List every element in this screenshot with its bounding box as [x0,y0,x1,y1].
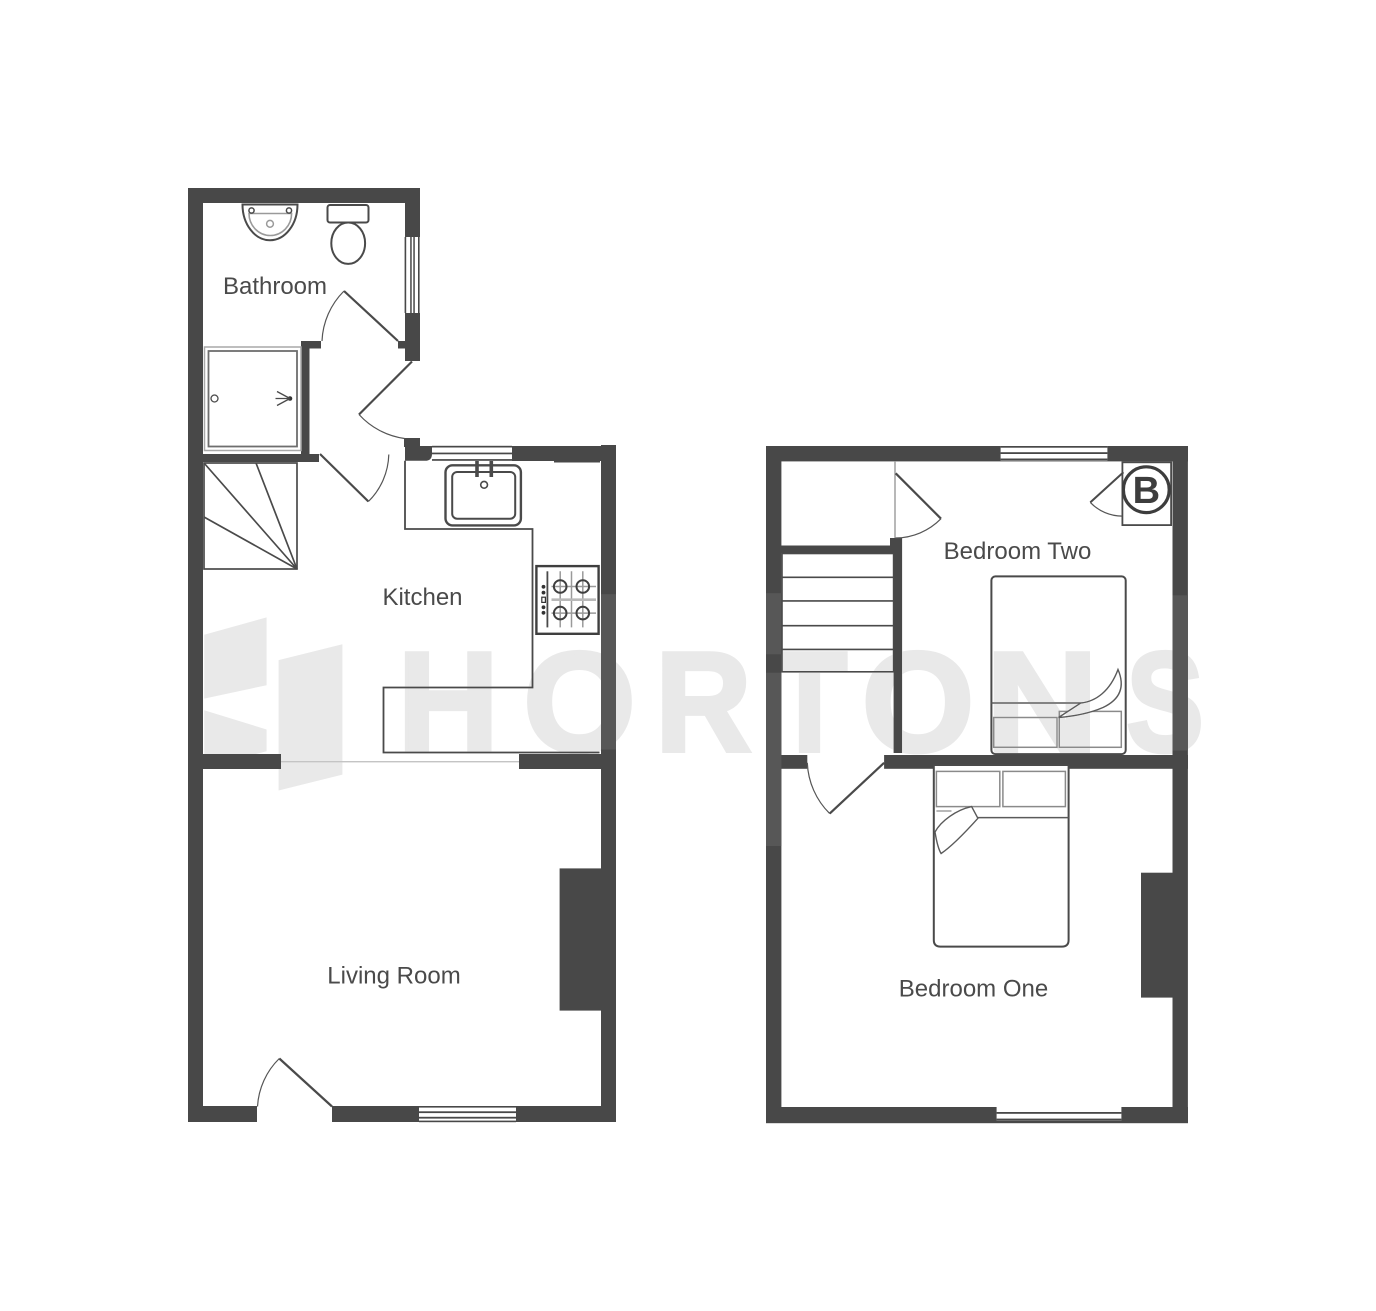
svg-text:R: R [655,623,751,782]
svg-text:Bedroom One: Bedroom One [899,975,1048,1002]
svg-text:Bathroom: Bathroom [223,273,327,300]
svg-text:Kitchen: Kitchen [382,584,462,611]
svg-text:Living Room: Living Room [327,962,460,989]
svg-text:B: B [1133,470,1160,512]
svg-text:N: N [985,623,1098,782]
svg-text:T: T [772,624,847,782]
svg-text:Bedroom Two: Bedroom Two [944,538,1092,565]
svg-text:O: O [862,623,975,781]
svg-text:H: H [397,622,499,781]
svg-text:O: O [523,623,636,781]
svg-text:S: S [1126,622,1204,782]
